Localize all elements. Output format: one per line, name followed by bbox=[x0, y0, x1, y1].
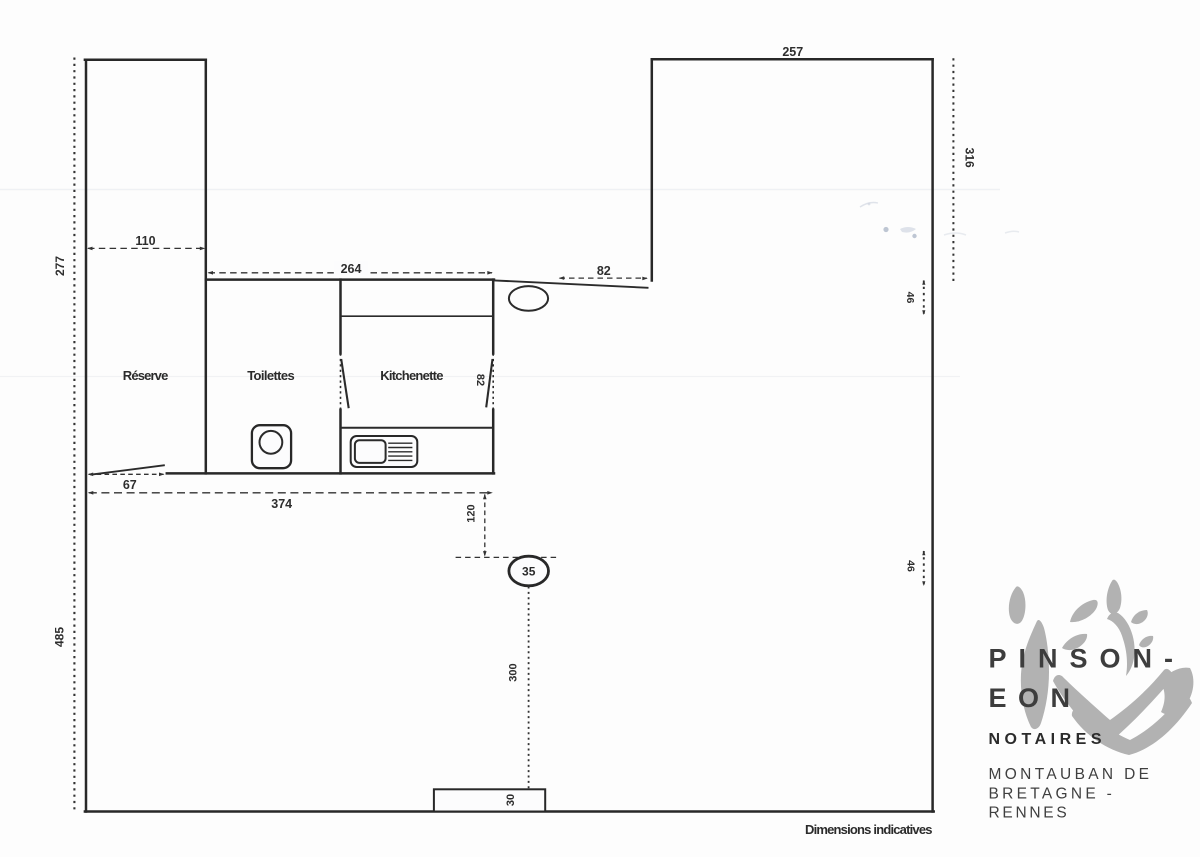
svg-text:Toilettes: Toilettes bbox=[247, 368, 295, 383]
svg-text:110: 110 bbox=[135, 234, 155, 248]
svg-text:46: 46 bbox=[905, 560, 917, 572]
svg-text:120: 120 bbox=[465, 504, 477, 522]
svg-text:257: 257 bbox=[782, 45, 803, 59]
svg-text:374: 374 bbox=[271, 497, 292, 511]
svg-text:EON: EON bbox=[989, 683, 1071, 713]
svg-text:Dimensions indicatives: Dimensions indicatives bbox=[805, 822, 933, 837]
svg-text:MONTAUBAN DE: MONTAUBAN DE bbox=[989, 766, 1150, 783]
svg-text:82: 82 bbox=[474, 374, 486, 386]
svg-text:264: 264 bbox=[341, 262, 362, 276]
svg-text:Kitchenette: Kitchenette bbox=[380, 368, 443, 383]
svg-text:Réserve: Réserve bbox=[123, 368, 169, 383]
svg-text:BRETAGNE -: BRETAGNE - bbox=[989, 785, 1112, 802]
svg-text:300: 300 bbox=[507, 663, 519, 681]
svg-text:316: 316 bbox=[962, 148, 976, 168]
svg-text:30: 30 bbox=[505, 794, 517, 806]
svg-text:485: 485 bbox=[53, 627, 67, 647]
svg-text:277: 277 bbox=[53, 256, 67, 276]
svg-text:82: 82 bbox=[597, 264, 611, 278]
svg-text:NOTAIRES: NOTAIRES bbox=[989, 731, 1102, 748]
svg-text:46: 46 bbox=[904, 292, 916, 304]
svg-text:67: 67 bbox=[123, 478, 137, 492]
svg-text:35: 35 bbox=[522, 565, 536, 579]
